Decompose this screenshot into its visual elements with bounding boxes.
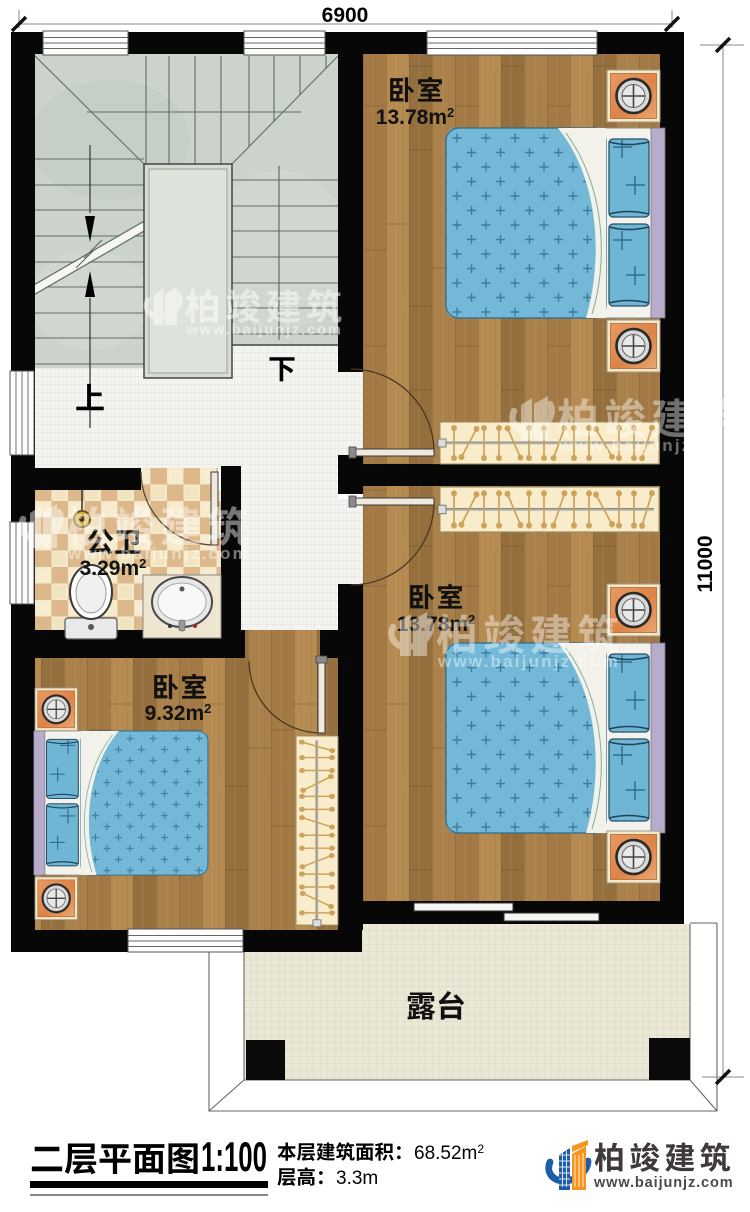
svg-text:11000: 11000 [694, 535, 717, 592]
svg-text:13.78m2: 13.78m2 [376, 105, 454, 129]
svg-text:www.baijunjz.com: www.baijunjz.com [67, 544, 250, 563]
svg-text:1:100: 1:100 [201, 1133, 267, 1180]
svg-text:www.baijunjz.com: www.baijunjz.com [593, 1175, 734, 1191]
svg-text:68.52m2: 68.52m2 [414, 1142, 484, 1164]
svg-text:www.baijunjz.com: www.baijunjz.com [558, 436, 741, 455]
svg-text:3.3m: 3.3m [336, 1168, 378, 1189]
svg-text:6900: 6900 [322, 4, 369, 27]
svg-text:9.32m2: 9.32m2 [145, 701, 212, 725]
svg-text:www.baijunjz.com: www.baijunjz.com [185, 322, 342, 338]
svg-text:www.baijunjz.com: www.baijunjz.com [437, 652, 620, 671]
